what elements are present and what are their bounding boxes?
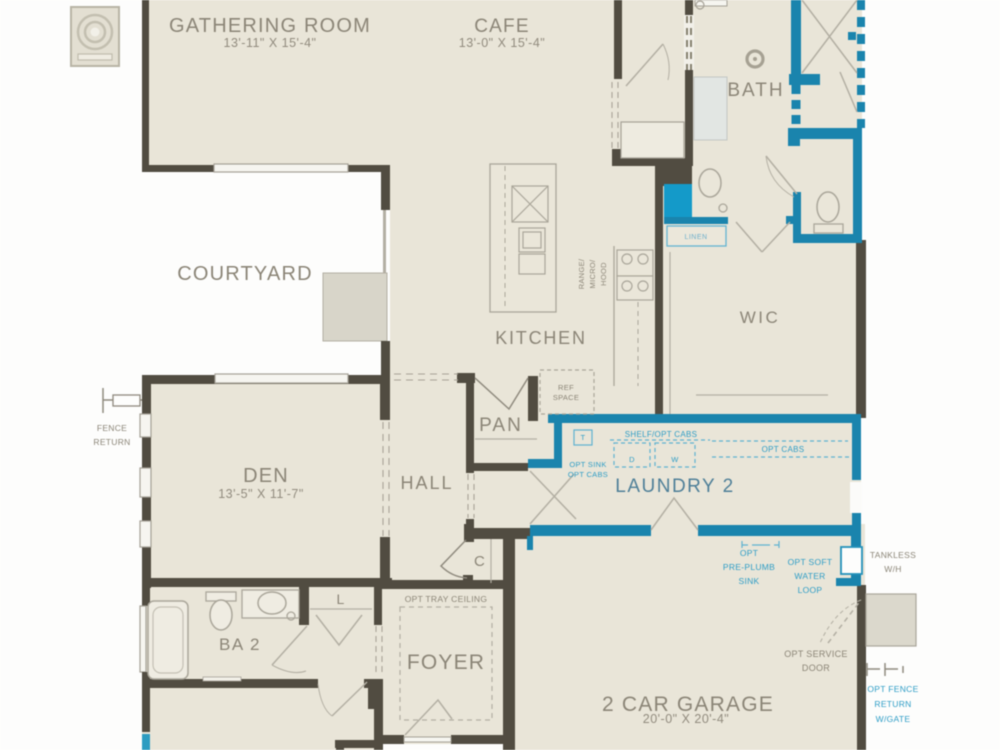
- svg-text:L: L: [337, 591, 346, 607]
- svg-text:LOOP: LOOP: [798, 585, 823, 595]
- svg-text:BA 2: BA 2: [219, 635, 261, 654]
- svg-text:GATHERING ROOM: GATHERING ROOM: [169, 15, 371, 37]
- svg-text:LINEN: LINEN: [684, 234, 707, 241]
- svg-text:RETURN: RETURN: [874, 699, 911, 709]
- svg-text:HOOD: HOOD: [599, 262, 608, 286]
- svg-text:WATER: WATER: [794, 571, 825, 581]
- svg-text:CAFE: CAFE: [474, 16, 529, 37]
- svg-text:REF: REF: [558, 383, 574, 392]
- svg-text:OPT TRAY CEILING: OPT TRAY CEILING: [405, 594, 488, 604]
- svg-text:OPT SINK: OPT SINK: [569, 460, 606, 469]
- svg-text:D: D: [629, 455, 635, 464]
- svg-text:BATH: BATH: [727, 80, 784, 101]
- svg-text:DEN: DEN: [243, 465, 289, 487]
- svg-text:DOOR: DOOR: [802, 663, 830, 673]
- svg-text:RANGE/: RANGE/: [577, 258, 586, 289]
- svg-text:MICRO/: MICRO/: [588, 259, 597, 288]
- svg-text:KITCHEN: KITCHEN: [495, 328, 587, 348]
- svg-text:13'-11" X 15'-4": 13'-11" X 15'-4": [224, 36, 317, 50]
- svg-text:WIC: WIC: [740, 308, 781, 327]
- svg-text:C: C: [474, 553, 486, 570]
- svg-text:OPT: OPT: [740, 548, 758, 558]
- svg-text:20'-0" X 20'-4": 20'-0" X 20'-4": [643, 712, 729, 726]
- svg-text:FENCE: FENCE: [97, 423, 127, 433]
- svg-text:LAUNDRY 2: LAUNDRY 2: [615, 476, 734, 497]
- svg-text:W/GATE: W/GATE: [876, 714, 911, 724]
- svg-text:SINK: SINK: [738, 576, 759, 586]
- svg-text:W/H: W/H: [884, 564, 901, 574]
- svg-text:OPT CABS: OPT CABS: [762, 445, 805, 454]
- svg-text:T: T: [581, 433, 586, 442]
- svg-text:13'-5" X 11'-7": 13'-5" X 11'-7": [218, 487, 304, 501]
- svg-text:OPT FENCE: OPT FENCE: [867, 684, 918, 694]
- svg-text:13'-0" X 15'-4": 13'-0" X 15'-4": [459, 36, 545, 50]
- svg-text:RETURN: RETURN: [93, 437, 130, 447]
- svg-text:W: W: [671, 455, 679, 464]
- svg-text:PAN: PAN: [479, 415, 523, 436]
- svg-text:HALL: HALL: [400, 473, 453, 493]
- svg-text:PRE-PLUMB: PRE-PLUMB: [723, 562, 775, 572]
- svg-text:TANKLESS: TANKLESS: [870, 550, 916, 560]
- svg-text:OPT CABS: OPT CABS: [568, 470, 608, 479]
- svg-text:OPT SOFT: OPT SOFT: [788, 557, 833, 567]
- svg-text:SPACE: SPACE: [553, 393, 579, 402]
- svg-text:OPT SERVICE: OPT SERVICE: [784, 649, 848, 659]
- svg-text:FOYER: FOYER: [407, 651, 485, 674]
- svg-text:SHELF/OPT CABS: SHELF/OPT CABS: [625, 430, 698, 439]
- svg-text:COURTYARD: COURTYARD: [177, 263, 313, 285]
